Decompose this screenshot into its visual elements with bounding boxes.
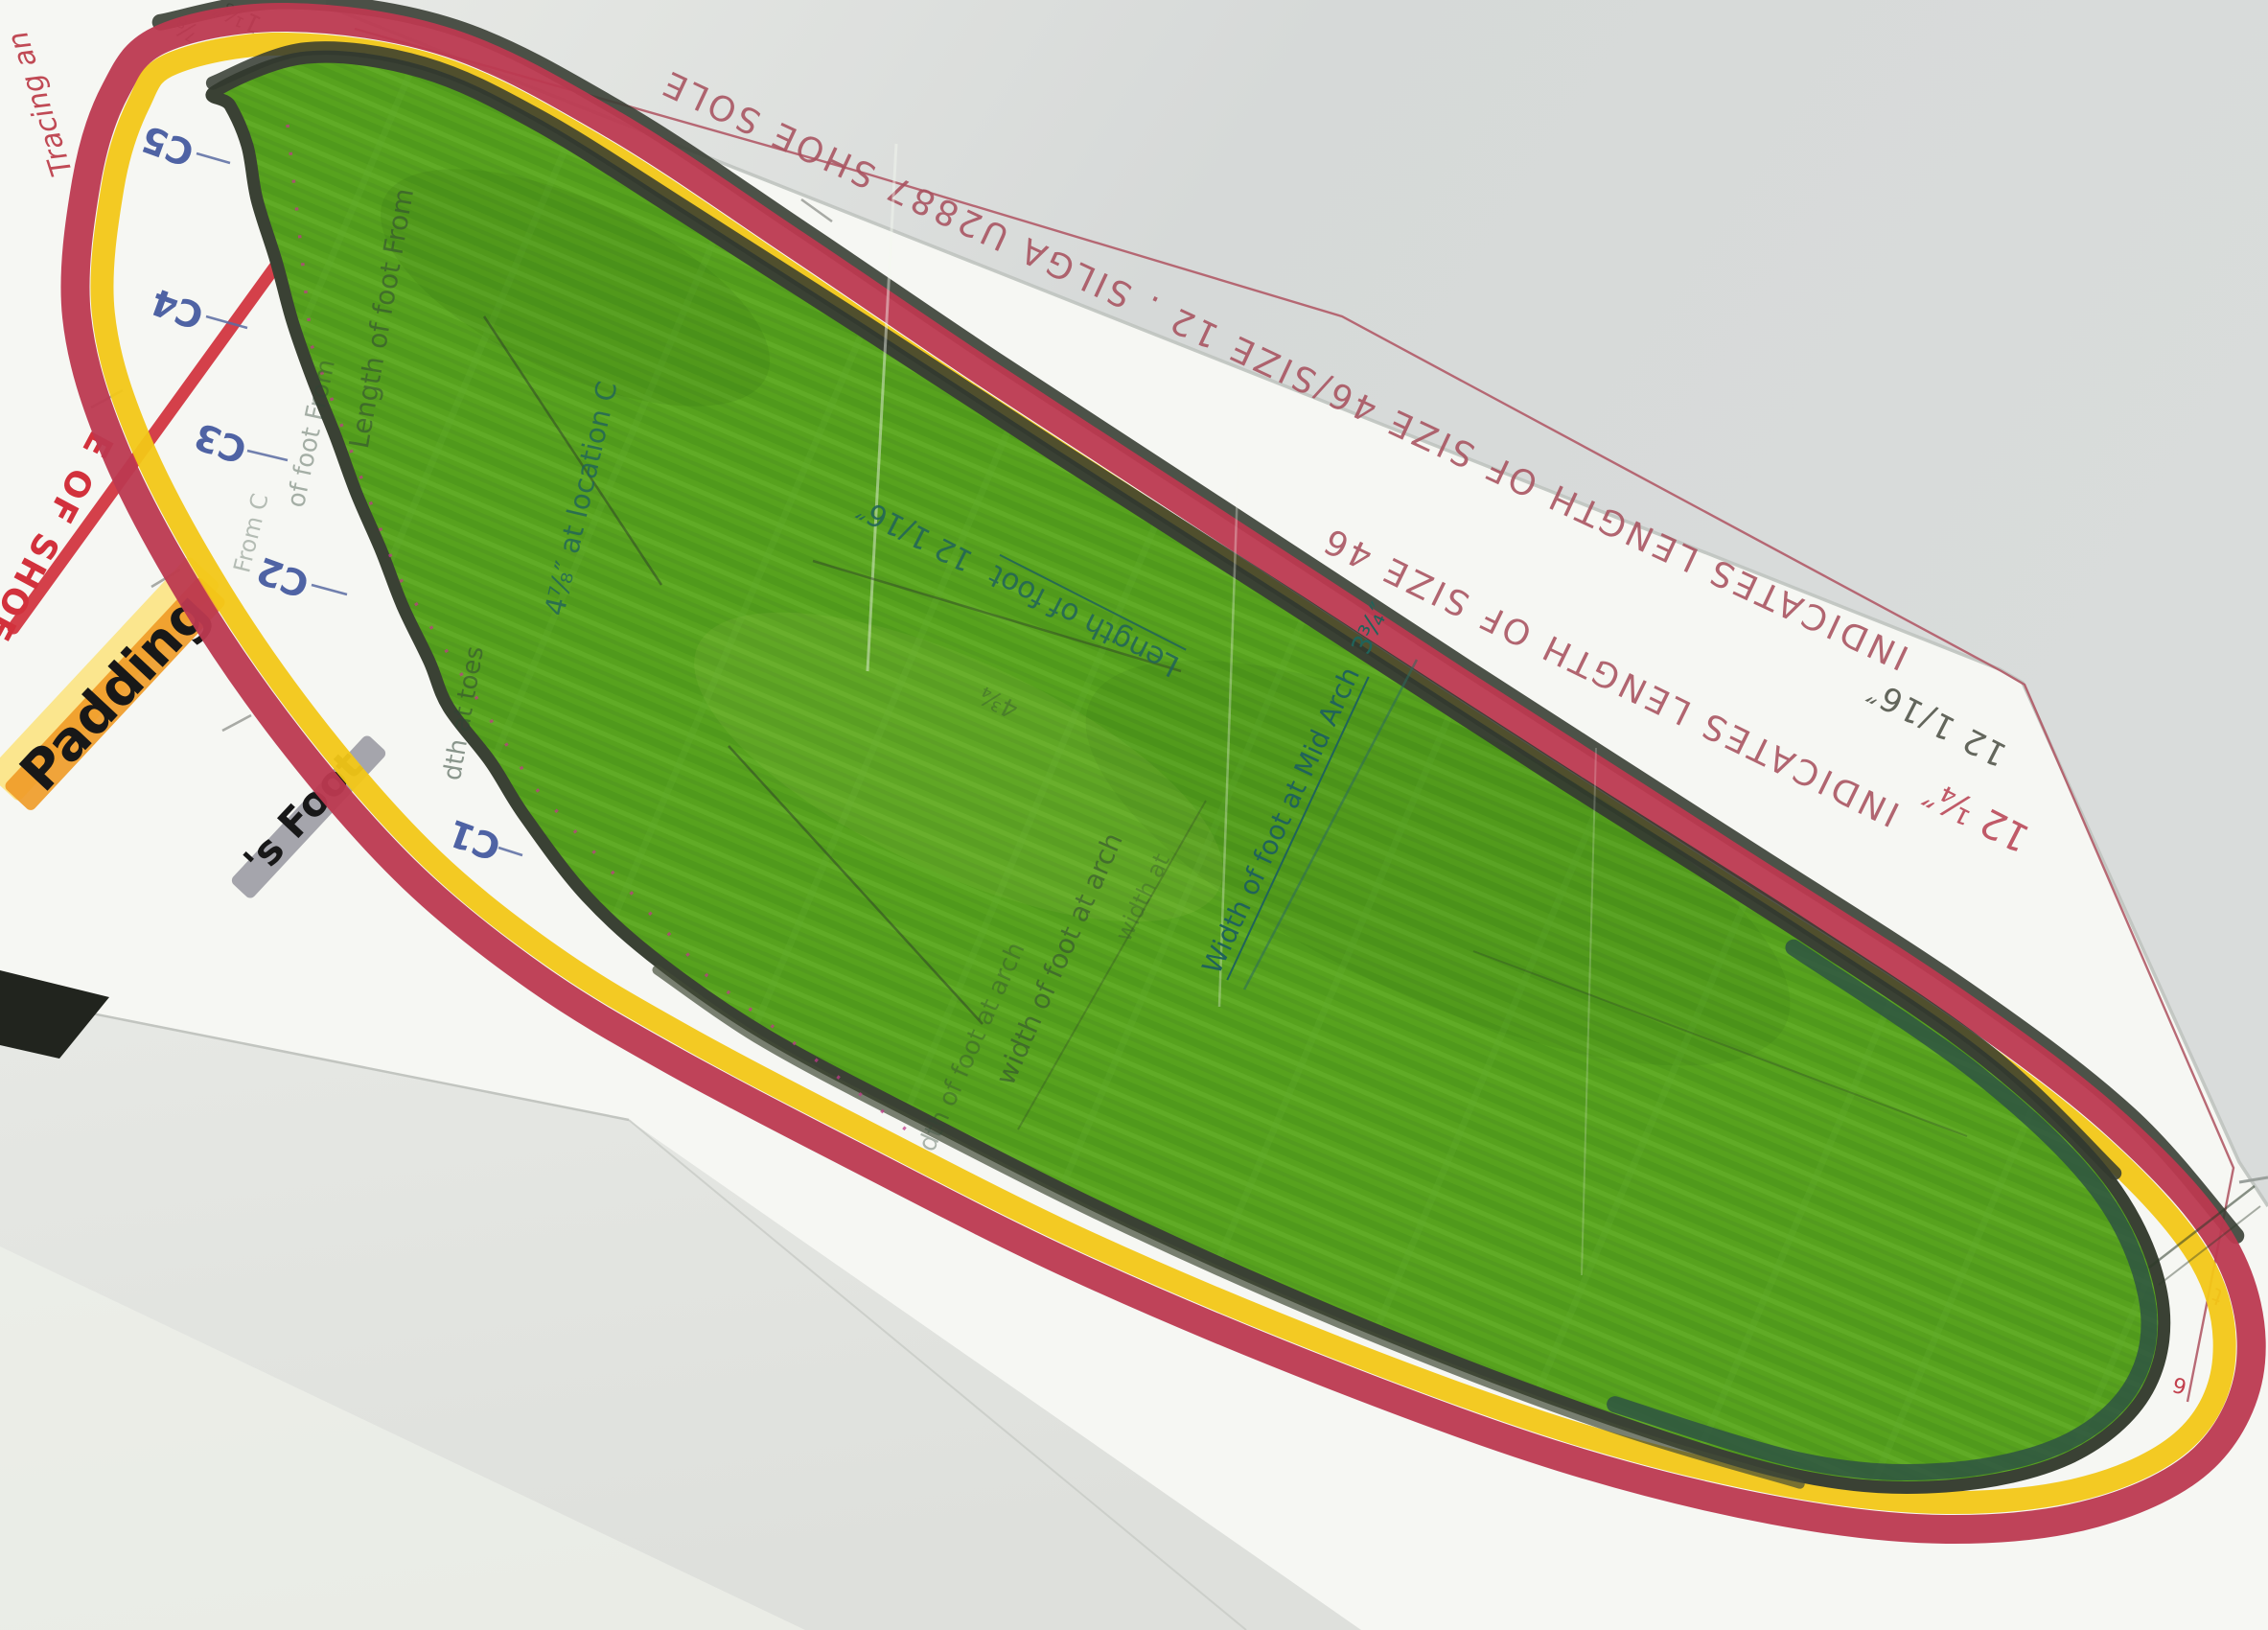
scanned-foot-tracing-document: INDICATES LENGTH OF SIZE 46/SIZE 12 . SI… [0, 0, 2268, 1630]
toes-width-note: dth at toes [438, 644, 490, 783]
toe-length-note-1: Length of foot From [343, 186, 420, 451]
mid-arch-note: Width of foot at Mid Arch 3¾″ [1196, 597, 1397, 979]
toe-length-note-2: of foot From [282, 357, 341, 510]
ball-width-note: 4¾ [975, 680, 1024, 724]
foot-length-label: Length of foot [984, 554, 1187, 683]
mid-arch-value: 3¾″ [1345, 597, 1396, 659]
toe-length-note-3: From C [228, 491, 273, 575]
foot-length-note: Length of foot 12 1/16″ [851, 491, 1185, 684]
foot-annotations: Length of foot From of foot From From C … [0, 0, 2268, 1630]
mid-arch-label: Width of foot at Mid Arch [1196, 663, 1370, 981]
location-measure-note: 4⅞″ at location C [538, 379, 623, 619]
arch-width-note-3: width at [1110, 850, 1175, 945]
foot-length-value: 12 1/16″ [851, 491, 979, 578]
